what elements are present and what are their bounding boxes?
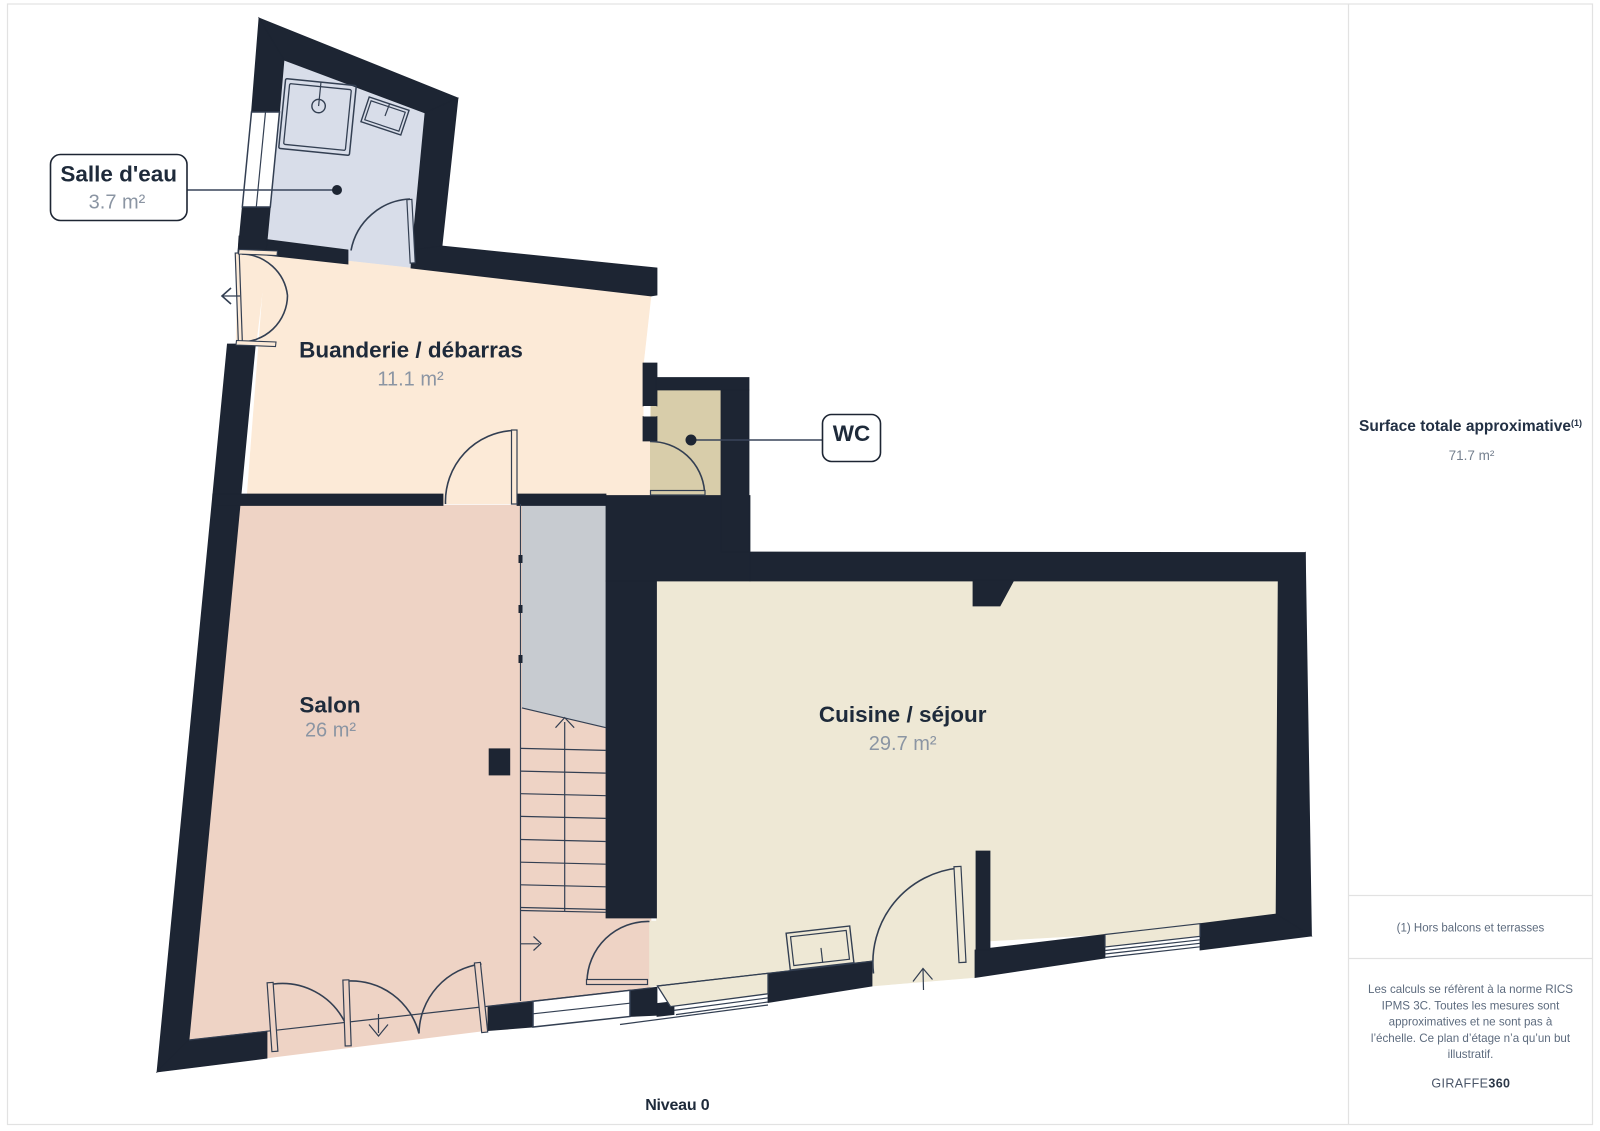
svg-text:Buanderie / débarras: Buanderie / débarras (299, 338, 523, 363)
svg-text:Cuisine / séjour: Cuisine / séjour (819, 702, 987, 727)
svg-text:IPMS 3C. Toutes les mesures so: IPMS 3C. Toutes les mesures sont (1382, 999, 1560, 1012)
svg-text:11.1 m²: 11.1 m² (377, 369, 444, 391)
svg-text:l’échelle. Ce plan d’étage n’a: l’échelle. Ce plan d’étage n’a qu’un but (1371, 1032, 1571, 1045)
svg-text:Surface totale approximative(1: Surface totale approximative(1) (1359, 418, 1582, 435)
svg-text:Niveau 0: Niveau 0 (645, 1097, 710, 1114)
svg-text:29.7 m²: 29.7 m² (869, 733, 937, 755)
svg-text:71.7 m²: 71.7 m² (1449, 448, 1495, 463)
svg-text:26 m²: 26 m² (305, 720, 356, 742)
svg-text:approximatives et ne sont pas: approximatives et ne sont pas à (1389, 1016, 1553, 1029)
svg-text:Salle d'eau: Salle d'eau (60, 162, 177, 187)
svg-text:3.7 m²: 3.7 m² (89, 192, 146, 214)
svg-text:illustratif.: illustratif. (1448, 1048, 1494, 1061)
svg-text:Salon: Salon (299, 693, 360, 718)
svg-text:Les calculs se réfèrent à la n: Les calculs se réfèrent à la norme RICS (1368, 983, 1573, 996)
svg-text:GIRAFFE360: GIRAFFE360 (1431, 1077, 1510, 1091)
svg-text:WC: WC (833, 421, 871, 446)
svg-text:(1) Hors balcons et terrasses: (1) Hors balcons et terrasses (1397, 923, 1545, 935)
